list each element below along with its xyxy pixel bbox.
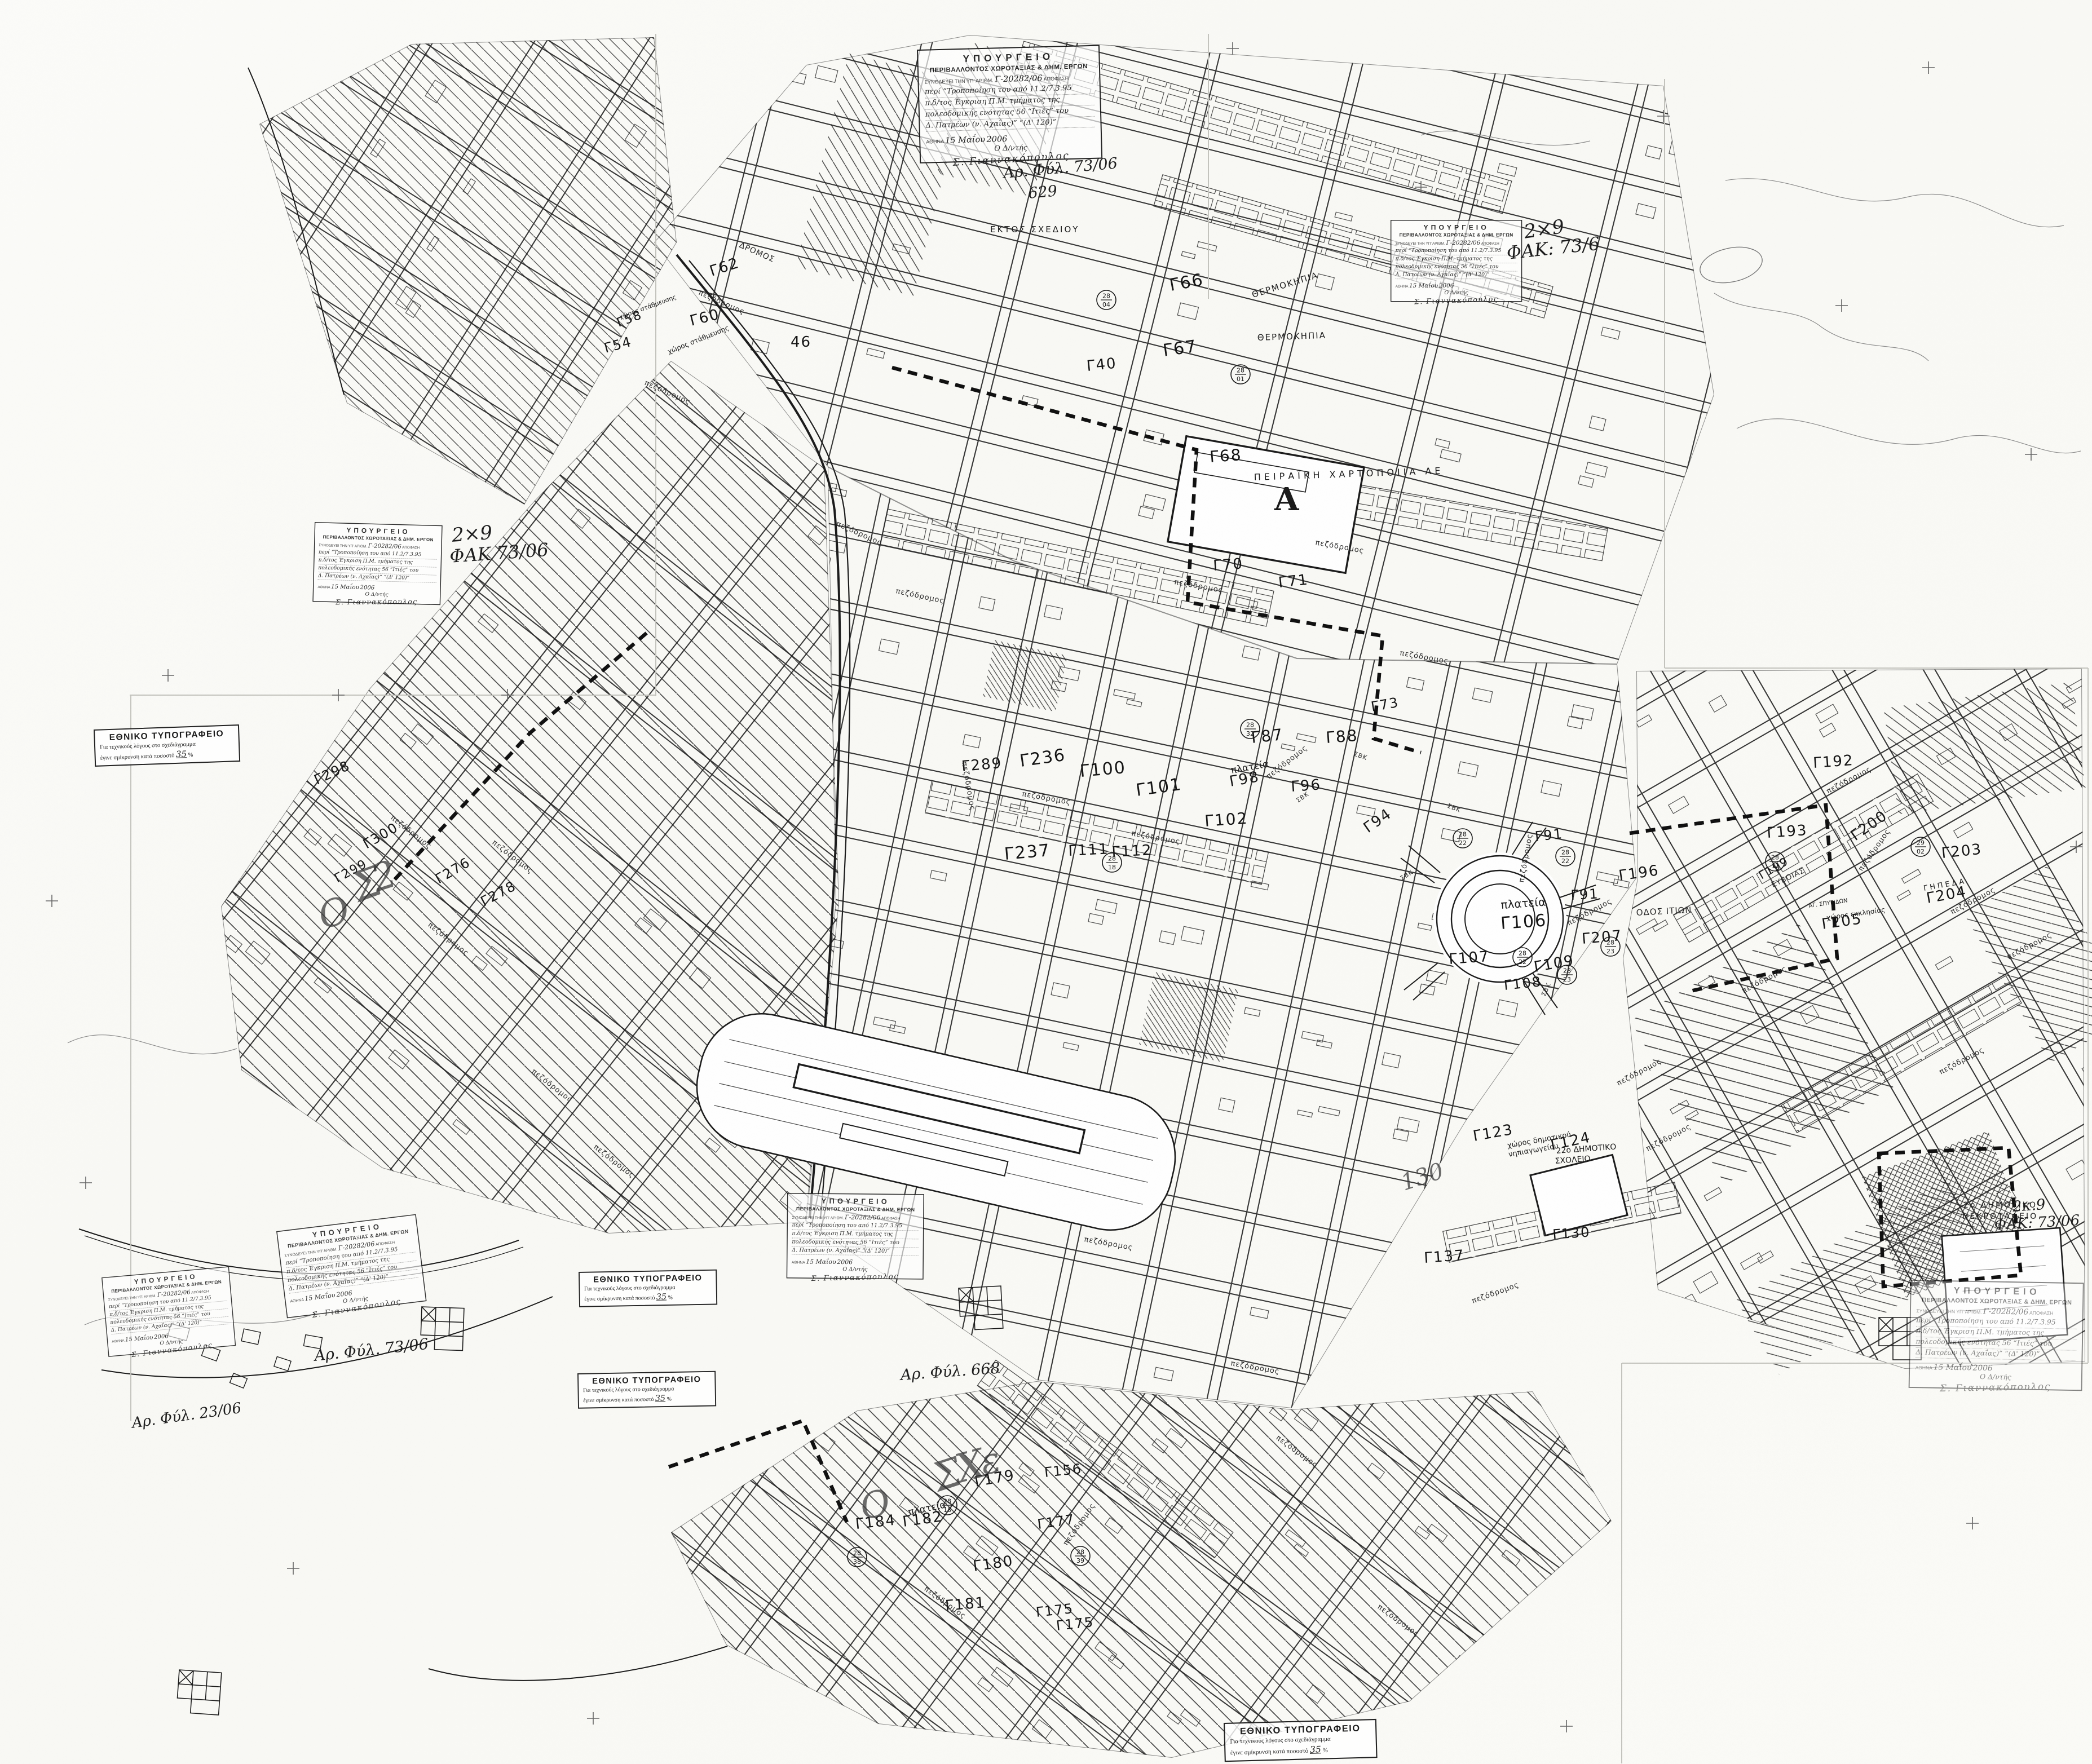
stamp-signature: Σ. Γιαννακόπουλος [317, 598, 436, 607]
ministry-approval-stamp: ΥΠΟΥΡΓΕΙΟ ΠΕΡΙΒΑΛΛΟΝΤΟΣ ΧΩΡΟΤΑΞΙΑΣ & ΔΗΜ… [1391, 220, 1522, 302]
stamp-title: ΥΠΟΥΡΓΕΙΟ [792, 1197, 919, 1206]
city-label: ΑΘΗΝΑ [1916, 1365, 1932, 1371]
ref-suffix: ΑΠΟΦΑΣΗ [191, 1289, 209, 1295]
ref-number: Γ-20282/06 [995, 74, 1043, 84]
date-value: 15 Μαΐου [331, 584, 359, 591]
scanned-town-plan-sheet: Γ236Γ289Γ100Γ101Γ237Γ111Γ112Γ87Γ88Γ98Γ96… [0, 0, 2092, 1764]
printing-stamp-line2: έγινε σμίκρυνση κατά ποσοστό 35 % [584, 1291, 712, 1303]
reduction-percent: 35 [655, 1393, 665, 1403]
ministry-approval-stamp: ΥΠΟΥΡΓΕΙΟ ΠΕΡΙΒΑΛΛΟΝΤΟΣ ΧΩΡΟΤΑΞΙΑΣ & ΔΗΜ… [1909, 1280, 2084, 1391]
ministry-approval-stamp: ΥΠΟΥΡΓΕΙΟ ΠΕΡΙΒΑΛΛΟΝΤΟΣ ΧΩΡΟΤΑΞΙΑΣ & ΔΗΜ… [101, 1266, 236, 1357]
year-value: 2006 [360, 585, 374, 591]
stamp-date: ΑΘΗΝΑ 15 Μαΐου 2006 [1396, 283, 1517, 290]
ministry-approval-stamp: ΥΠΟΥΡΓΕΙΟ ΠΕΡΙΒΑΛΛΟΝΤΟΣ ΧΩΡΟΤΑΞΙΑΣ & ΔΗΜ… [787, 1193, 924, 1280]
stamp-decision-ref: ΣΥΝΟΔΕΥΕΙ ΤΗΝ ΥΠ’ ΑΡΙΘΜ. Γ-20282/06 ΑΠΟΦ… [1396, 240, 1517, 246]
decree-line: περί “Τροποποίηση του από 11.2/7.3.95 [1396, 247, 1517, 255]
reduction-text: έγινε σμίκρυνση κατά ποσοστό [583, 1396, 654, 1404]
date-value: 15 Μαΐου [945, 135, 985, 145]
stamp-title: ΥΠΟΥΡΓΕΙΟ [1396, 223, 1517, 231]
year-value: 2006 [1439, 283, 1454, 290]
ref-number: Γ-20282/06 [845, 1214, 880, 1222]
city-label: ΑΘΗΝΑ [112, 1338, 124, 1343]
reduction-text: έγινε σμίκρυνση κατά ποσοστό [100, 753, 175, 762]
percent-sign: % [1323, 1747, 1328, 1754]
stamp-decree-description: περί “Τροποποίηση του από 11.2/7.3.95 π.… [318, 549, 437, 583]
ref-number: Γ-20282/06 [368, 543, 401, 550]
reduction-percent: 35 [1310, 1744, 1322, 1754]
stamp-decree-description: περί “Τροποποίηση του από 11.2/7.3.95 π.… [1916, 1316, 2077, 1361]
ref-prefix: ΣΥΝΟΔΕΥΕΙ ΤΗΝ ΥΠ’ ΑΡΙΘΜ. [924, 77, 993, 85]
decree-line: Δ. Πατρέων (ν. Αχαΐας)” “(Δ' 120)” [792, 1246, 919, 1256]
decree-line: Δ. Πατρέων (ν. Αχαΐας)” “(Δ' 120)” [1916, 1347, 2076, 1361]
handwritten-annotation: 629 [1027, 183, 1058, 202]
decree-line: πολεοδομικής ενότητας 56 “Ιτιές” του [1396, 263, 1517, 271]
ref-suffix: ΑΠΟΦΑΣΗ [881, 1216, 900, 1221]
town-plan-drawing: Γ236Γ289Γ100Γ101Γ237Γ111Γ112Γ87Γ88Γ98Γ96… [0, 0, 2092, 1764]
date-value: 15 Μαΐου [806, 1259, 836, 1266]
ref-suffix: ΑΠΟΦΑΣΗ [2029, 1310, 2053, 1316]
reduction-percent: 35 [656, 1292, 667, 1301]
ref-prefix: ΣΥΝΟΔΕΥΕΙ ΤΗΝ ΥΠ’ ΑΡΙΘΜ. [319, 543, 367, 548]
stamp-decree-description: περί “Τροποποίηση του από 11.2/7.3.95 π.… [1396, 247, 1517, 279]
stamp-ministry-name: ΠΕΡΙΒΑΛΛΟΝΤΟΣ ΧΩΡΟΤΑΞΙΑΣ & ΔΗΜ. ΕΡΓΩΝ [1917, 1297, 2077, 1306]
year-value: 2006 [1972, 1364, 1992, 1373]
city-label: ΑΘΗΝΑ [290, 1298, 304, 1304]
stamp-title: ΥΠΟΥΡΓΕΙΟ [1917, 1285, 2077, 1298]
stamp-decree-description: περί “Τροποποίηση του από 11.2/7.3.95 π.… [792, 1221, 919, 1255]
national-printing-office-stamp: ΕΘΝΙΚΟ ΤΥΠΟΓΡΑΦΕΙΟ Για τεχνικούς λόγους … [577, 1371, 716, 1409]
ministry-approval-stamp: ΥΠΟΥΡΓΕΙΟ ΠΕΡΙΒΑΛΛΟΝΤΟΣ ΧΩΡΟΤΑΞΙΑΣ & ΔΗΜ… [276, 1214, 427, 1319]
stamp-decision-ref: ΣΥΝΟΔΕΥΕΙ ΤΗΝ ΥΠ’ ΑΡΙΘΜ. Γ-20282/06 ΑΠΟΦ… [792, 1214, 919, 1222]
printing-stamp-title: ΕΘΝΙΚΟ ΤΥΠΟΓΡΑΦΕΙΟ [583, 1375, 710, 1387]
national-printing-office-stamp: ΕΘΝΙΚΟ ΤΥΠΟΓΡΑΦΕΙΟ Για τεχνικούς λόγους … [1224, 1719, 1378, 1762]
percent-sign: % [668, 1295, 672, 1301]
decree-line: π.δ/τος Έγκριση Π.Μ. τμήματος της [792, 1230, 919, 1239]
reduction-text: έγινε σμίκρυνση κατά ποσοστό [584, 1295, 655, 1302]
reduction-percent: 35 [176, 749, 187, 759]
city-label: ΑΘΗΝΑ [792, 1261, 805, 1265]
printing-stamp-line2: έγινε σμίκρυνση κατά ποσοστό 35 % [583, 1392, 710, 1404]
ref-prefix: ΣΥΝΟΔΕΥΕΙ ΤΗΝ ΥΠ’ ΑΡΙΘΜ. [792, 1215, 844, 1220]
reduction-text: έγινε σμίκρυνση κατά ποσοστό [1230, 1748, 1309, 1756]
printing-stamp-title: ΕΘΝΙΚΟ ΤΥΠΟΓΡΑΦΕΙΟ [584, 1274, 712, 1285]
stamp-date: ΑΘΗΝΑ 15 Μαΐου 2006 [792, 1259, 919, 1267]
stamp-decree-description: περί “Τροποποίηση του από 11.2/7.3.95 π.… [925, 83, 1095, 132]
percent-sign: % [667, 1396, 671, 1403]
ministry-approval-stamp: ΥΠΟΥΡΓΕΙΟ ΠΕΡΙΒΑΛΛΟΝΤΟΣ ΧΩΡΟΤΑΞΙΑΣ & ΔΗΜ… [917, 45, 1102, 164]
decree-line: Δ. Πατρέων (ν. Αχαΐας)” “(Δ' 120)” [1396, 271, 1517, 279]
handwritten-annotation: 2κ.9 [2012, 1196, 2046, 1215]
date-value: 15 Μαΐου [1934, 1363, 1972, 1372]
year-value: 2006 [986, 135, 1007, 144]
ref-prefix: ΣΥΝΟΔΕΥΕΙ ΤΗΝ ΥΠ’ ΑΡΙΘΜ. [1396, 241, 1445, 245]
national-printing-office-stamp: ΕΘΝΙΚΟ ΤΥΠΟΓΡΑΦΕΙΟ Για τεχνικούς λόγους … [579, 1270, 717, 1307]
ref-prefix: ΣΥΝΟΔΕΥΕΙ ΤΗΝ ΥΠ’ ΑΡΙΘΜ. [1916, 1308, 1981, 1315]
decree-line: πολεοδομικής ενότητας 56 “Ιτιές” του [792, 1238, 919, 1248]
decree-line: π.δ/τος Έγκριση Π.Μ. τμήματος της [1396, 255, 1517, 263]
ref-suffix: ΑΠΟΦΑΣΗ [1044, 76, 1069, 82]
ref-suffix: ΑΠΟΦΑΣΗ [402, 545, 420, 550]
ref-suffix: ΑΠΟΦΑΣΗ [376, 1240, 395, 1246]
national-printing-office-stamp: ΕΘΝΙΚΟ ΤΥΠΟΓΡΑΦΕΙΟ Για τεχνικούς λόγους … [94, 724, 240, 767]
city-label: ΑΘΗΝΑ [317, 585, 330, 590]
stamp-ministry-name: ΠΕΡΙΒΑΛΛΟΝΤΟΣ ΧΩΡΟΤΑΞΙΑΣ & ΔΗΜ. ΕΡΓΩΝ [792, 1206, 919, 1213]
ref-suffix: ΑΠΟΦΑΣΗ [1481, 241, 1499, 245]
stamp-ministry-name: ΠΕΡΙΒΑΛΛΟΝΤΟΣ ΧΩΡΟΤΑΞΙΑΣ & ΔΗΜ. ΕΡΓΩΝ [1396, 233, 1517, 238]
ministry-approval-stamp: ΥΠΟΥΡΓΕΙΟ ΠΕΡΙΒΑΛΛΟΝΤΟΣ ΧΩΡΟΤΑΞΙΑΣ & ΔΗΜ… [312, 522, 442, 605]
ref-number: Γ-20282/06 [1446, 240, 1480, 246]
city-label: ΑΘΗΝΑ [1396, 285, 1409, 289]
ref-number: Γ-20282/06 [1983, 1307, 2028, 1317]
printing-stamp-line2: έγινε σμίκρυνση κατά ποσοστό 35 % [1230, 1743, 1371, 1757]
date-value: 15 Μαΐου [1409, 283, 1438, 290]
percent-sign: % [188, 752, 193, 758]
year-value: 2006 [837, 1259, 853, 1266]
scan-grain-overlay [0, 0, 2092, 1764]
city-label: ΑΘΗΝΑ [926, 139, 944, 145]
